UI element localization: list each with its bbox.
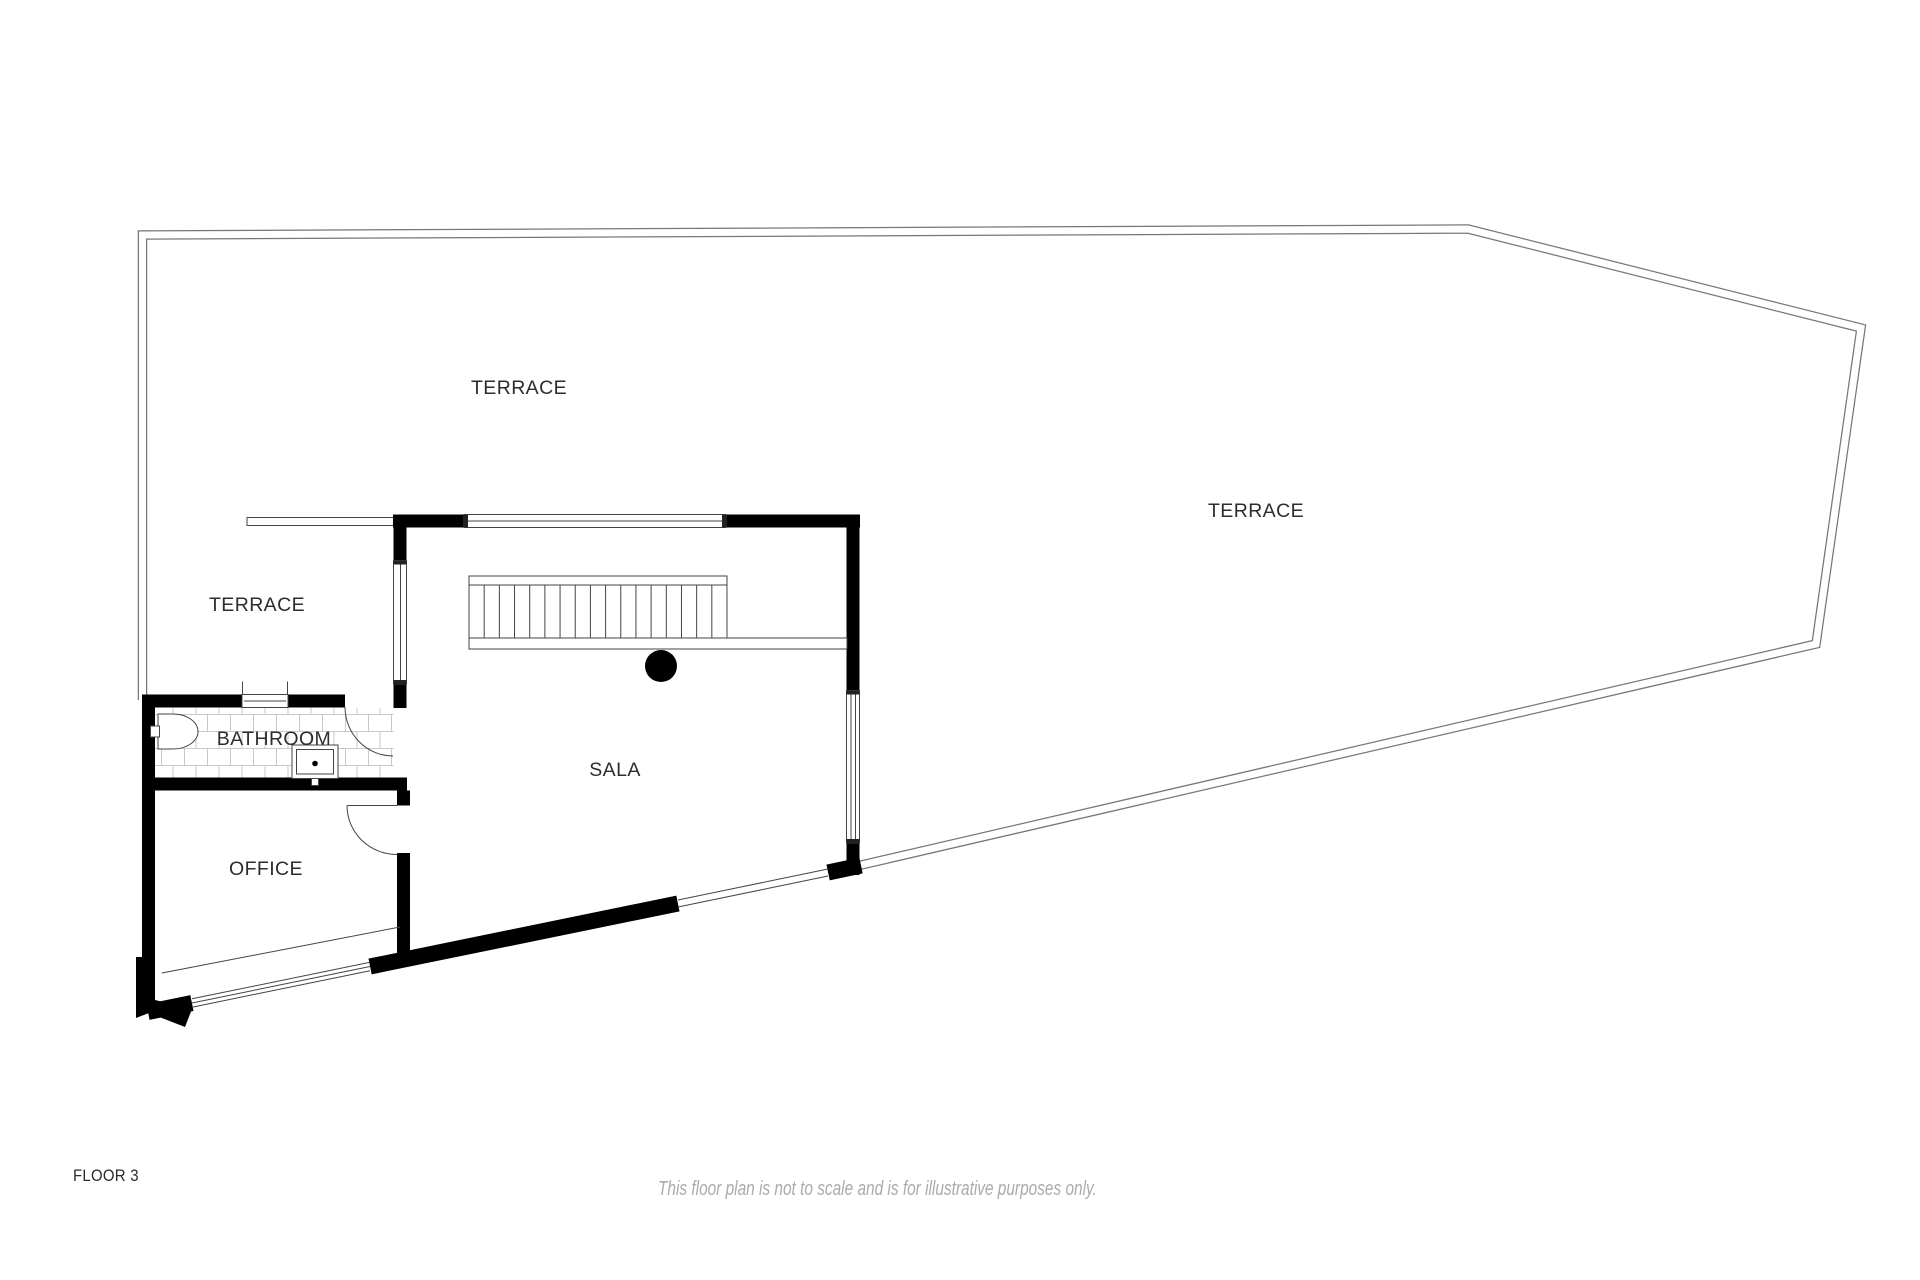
wall-divider-upper	[397, 791, 410, 806]
wall-bathroom-bottom	[142, 778, 407, 791]
room-label-terrace-top: TERRACE	[471, 377, 567, 399]
floor-plan: TERRACE TERRACE TERRACE BATHROOM SALA OF…	[0, 0, 1920, 1280]
sink-faucet-stub	[312, 779, 319, 786]
window-sala-top	[464, 515, 726, 528]
room-label-office: OFFICE	[229, 858, 303, 880]
sink-drain	[312, 761, 318, 767]
window-office	[192, 962, 370, 1007]
floor-label: FLOOR 3	[73, 1166, 139, 1186]
window-sala-left-post-bottom	[394, 680, 407, 684]
window-sala-bottom	[678, 869, 828, 907]
wall-sala-top-right	[726, 515, 860, 528]
room-label-sala: SALA	[589, 759, 640, 781]
floor-plan-canvas: TERRACE TERRACE TERRACE BATHROOM SALA OF…	[0, 0, 1920, 1280]
window-sala-right-post-top	[847, 691, 860, 695]
room-label-terrace-left: TERRACE	[209, 594, 305, 616]
wall-sala-left-lower	[394, 684, 407, 708]
terrace-screen-wall	[247, 518, 395, 526]
stairs-bottom-rail	[469, 638, 847, 649]
building-bottom-angled-wall	[148, 866, 861, 1013]
toilet	[151, 714, 199, 749]
wall-bathroom-top-left	[142, 695, 242, 708]
wall-sala-left-upper	[394, 515, 407, 561]
door-office	[347, 806, 397, 855]
column	[645, 650, 677, 682]
window-sala-top-post-left	[464, 515, 468, 528]
toilet-cistern	[151, 726, 160, 737]
wall-sala-right-upper	[847, 515, 860, 691]
stairs	[469, 576, 847, 649]
window-sala-top-post-right	[722, 515, 726, 528]
wall-angled-seg-middle	[370, 904, 678, 967]
window-sala-right-post-bottom	[847, 839, 860, 843]
room-label-terrace-right: TERRACE	[1208, 500, 1304, 522]
disclaimer-text: This floor plan is not to scale and is f…	[658, 1178, 1097, 1201]
window-sala-bottom-opening	[678, 873, 828, 904]
wall-divider-lower	[397, 853, 410, 964]
door-office-swing-arc	[347, 806, 397, 855]
wall-bathroom-top-right	[288, 695, 345, 708]
window-sala-left-post-top	[394, 561, 407, 565]
room-label-bathroom: BATHROOM	[217, 728, 331, 750]
window-bathroom	[242, 682, 288, 708]
wall-angled-seg-left	[148, 1003, 192, 1012]
wall-angled-seg-right	[828, 866, 861, 873]
window-sala-right-frame	[847, 691, 860, 844]
window-sala-right	[847, 691, 860, 844]
window-bathroom-jambs	[243, 682, 288, 695]
window-sala-left	[394, 561, 407, 685]
